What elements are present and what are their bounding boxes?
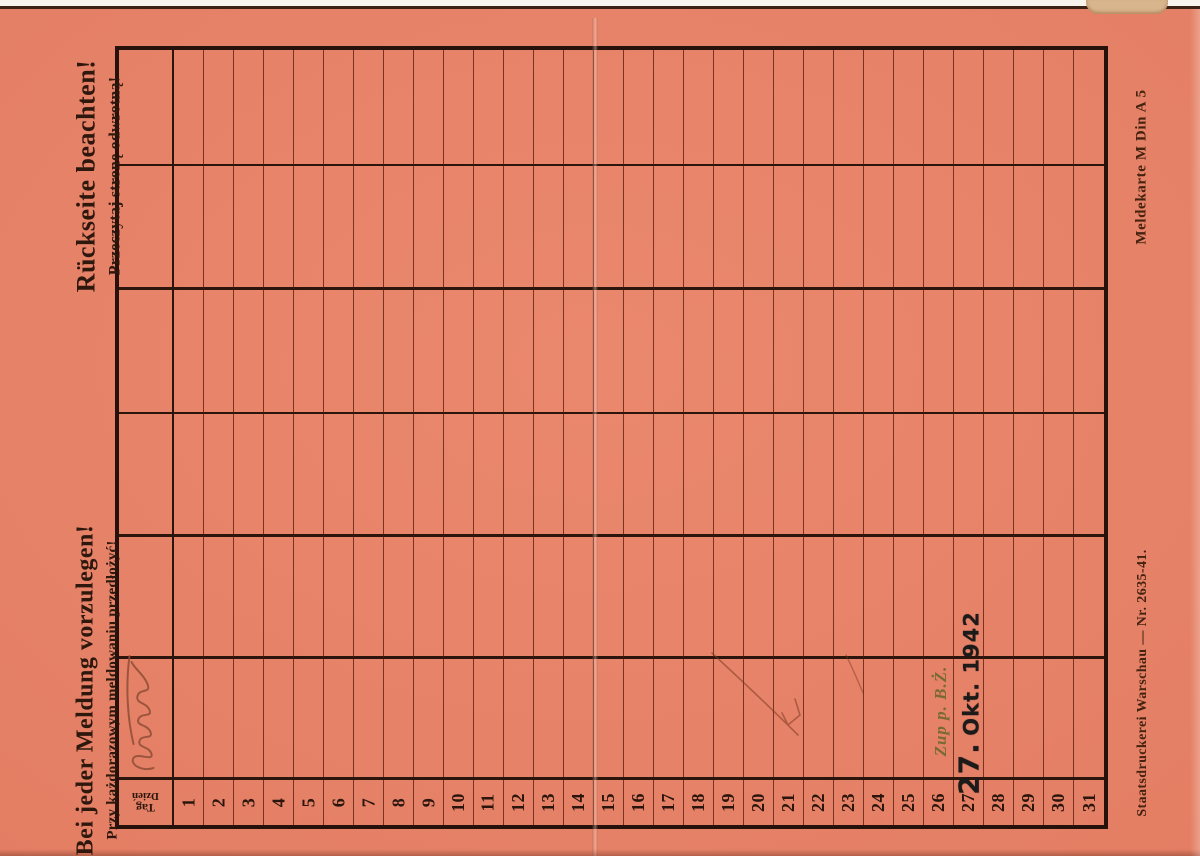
form-type-label: Meldekarte M Din A 5: [1134, 89, 1151, 244]
day-column: [714, 50, 744, 777]
document-photo: 1234567891011121314151617181920212223242…: [0, 0, 1200, 856]
day-column: [834, 50, 864, 777]
day-number: 11: [478, 793, 499, 811]
day-number: 4: [268, 798, 289, 808]
day-column: [534, 50, 564, 777]
top-edge-object: [1086, 0, 1168, 14]
stamp-month-year: Okt. 1942: [960, 611, 984, 736]
day-number-cell: 13: [534, 780, 564, 825]
day-number: 12: [508, 793, 529, 812]
handwritten-note: Zup p. B.Ż.: [931, 666, 951, 757]
day-column: [654, 50, 684, 777]
card-right-edge-highlight: [1190, 9, 1200, 856]
day-column: [474, 50, 504, 777]
day-number: 8: [388, 798, 409, 808]
instruction-rueckseite: Rückseite beachten! Przeczytaj stronę od…: [72, 60, 125, 293]
card-bottom-edge-shadow: [0, 849, 1200, 856]
day-column: [1014, 50, 1044, 777]
day-number: 25: [898, 793, 919, 812]
date-stamp: 27. Okt. 1942: [953, 611, 986, 795]
day-column: [624, 50, 654, 777]
day-number: 28: [988, 793, 1009, 812]
day-header-cell: Tag Dzień: [119, 780, 172, 825]
day-number: 6: [328, 798, 349, 808]
day-number: 1: [178, 798, 199, 808]
day-number: 7: [358, 798, 379, 808]
day-number-cell: 11: [474, 780, 504, 825]
day-number-cell: 2: [204, 780, 234, 825]
day-number-cell: 28: [984, 780, 1014, 825]
day-number-cell: 10: [444, 780, 474, 825]
day-column: [744, 50, 774, 777]
day-number-cell: 15: [594, 780, 624, 825]
day-column: [564, 50, 594, 777]
stamp-day: 27.: [953, 742, 986, 795]
day-number-cell: 12: [504, 780, 534, 825]
day-number: 2: [208, 798, 229, 808]
day-column: [264, 50, 294, 777]
day-number-cell: 30: [1044, 780, 1074, 825]
day-number-cell: 3: [234, 780, 264, 825]
day-number-cell: 6: [324, 780, 354, 825]
day-column: [294, 50, 324, 777]
day-number: 26: [928, 793, 949, 812]
day-column: [384, 50, 414, 777]
day-number-cell: 7: [354, 780, 384, 825]
day-number-cell: 19: [714, 780, 744, 825]
day-number-cell: 8: [384, 780, 414, 825]
day-header-pl: Dzień: [132, 790, 159, 802]
day-number: 19: [718, 793, 739, 812]
day-column: [324, 50, 354, 777]
meldekarte-card: 1234567891011121314151617181920212223242…: [0, 6, 1200, 856]
day-number: 13: [538, 793, 559, 812]
day-column: [174, 50, 204, 777]
instruction-meldung-de: Bei jeder Meldung vorzulegen!: [73, 525, 100, 856]
day-number: 29: [1018, 793, 1039, 812]
day-number-cell: 24: [864, 780, 894, 825]
instruction-rueckseite-pl: Przeczytaj stronę odwrotną!: [107, 60, 125, 293]
day-column: [864, 50, 894, 777]
day-number-cell: 14: [564, 780, 594, 825]
day-column: [1044, 50, 1074, 777]
day-column: [984, 50, 1014, 777]
day-column: [894, 50, 924, 777]
day-number: 9: [418, 798, 439, 808]
day-column: [774, 50, 804, 777]
day-number: 21: [778, 793, 799, 812]
day-column: [1074, 50, 1104, 777]
day-number-cell: 21: [774, 780, 804, 825]
day-number: 27: [958, 793, 979, 812]
day-number-cell: 26: [924, 780, 954, 825]
printer-imprint: Staatsdruckerei Warschau — Nr. 2635-41.: [1135, 549, 1151, 816]
day-number: 15: [598, 793, 619, 812]
signature-handwriting: [120, 648, 167, 774]
day-column: [444, 50, 474, 777]
day-number: 24: [868, 793, 889, 812]
day-number: 30: [1048, 793, 1069, 812]
day-column: [234, 50, 264, 777]
day-number: 18: [688, 793, 709, 812]
day-number: 20: [748, 793, 769, 812]
instruction-rueckseite-de: Rückseite beachten!: [72, 60, 102, 293]
day-column: [204, 50, 234, 777]
day-number-cell: 5: [294, 780, 324, 825]
day-number-cell: 20: [744, 780, 774, 825]
day-number: 23: [838, 793, 859, 812]
day-header-de: Tag: [132, 802, 159, 815]
day-header-label: Tag Dzień: [132, 790, 159, 814]
day-number-cell: 4: [264, 780, 294, 825]
day-number-cell: 9: [414, 780, 444, 825]
day-column: [684, 50, 714, 777]
day-number: 3: [238, 798, 259, 808]
instruction-meldung: Bei jeder Meldung vorzulegen! Przy każdo…: [73, 525, 122, 856]
day-number: 17: [658, 793, 679, 812]
day-number-cell: 16: [624, 780, 654, 825]
day-number-cell: 17: [654, 780, 684, 825]
day-column: [354, 50, 384, 777]
day-column: [804, 50, 834, 777]
day-number: 5: [298, 798, 319, 808]
day-number: 16: [628, 793, 649, 812]
day-number-cell: 22: [804, 780, 834, 825]
day-number-cell: 1: [174, 780, 204, 825]
day-number-cell: 23: [834, 780, 864, 825]
day-number-cell: 29: [1014, 780, 1044, 825]
day-column: [594, 50, 624, 777]
day-number: 31: [1079, 793, 1100, 812]
day-number-cell: 25: [894, 780, 924, 825]
day-number: 22: [808, 793, 829, 812]
day-number: 14: [568, 793, 589, 812]
day-column: [414, 50, 444, 777]
day-column: [504, 50, 534, 777]
day-number: 10: [448, 793, 469, 812]
day-number-cell: 18: [684, 780, 714, 825]
day-number-cell: 31: [1074, 780, 1104, 825]
